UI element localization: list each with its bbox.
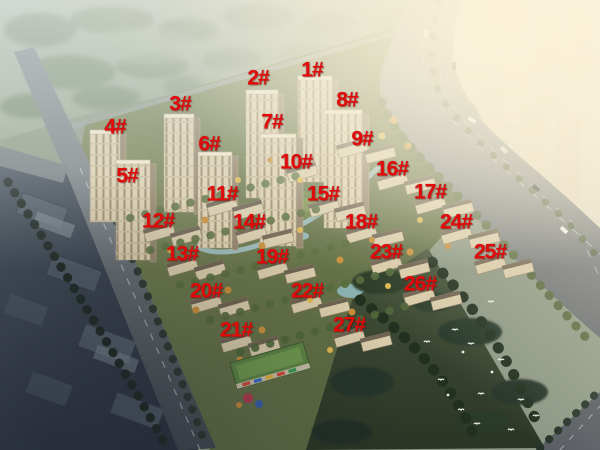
haze-overlay xyxy=(0,0,600,450)
aerial-rendering: 1#2#3#4#5#6#7#8#9#10#11#12#13#14#15#16#1… xyxy=(0,0,600,450)
scene-backdrop xyxy=(0,0,600,450)
